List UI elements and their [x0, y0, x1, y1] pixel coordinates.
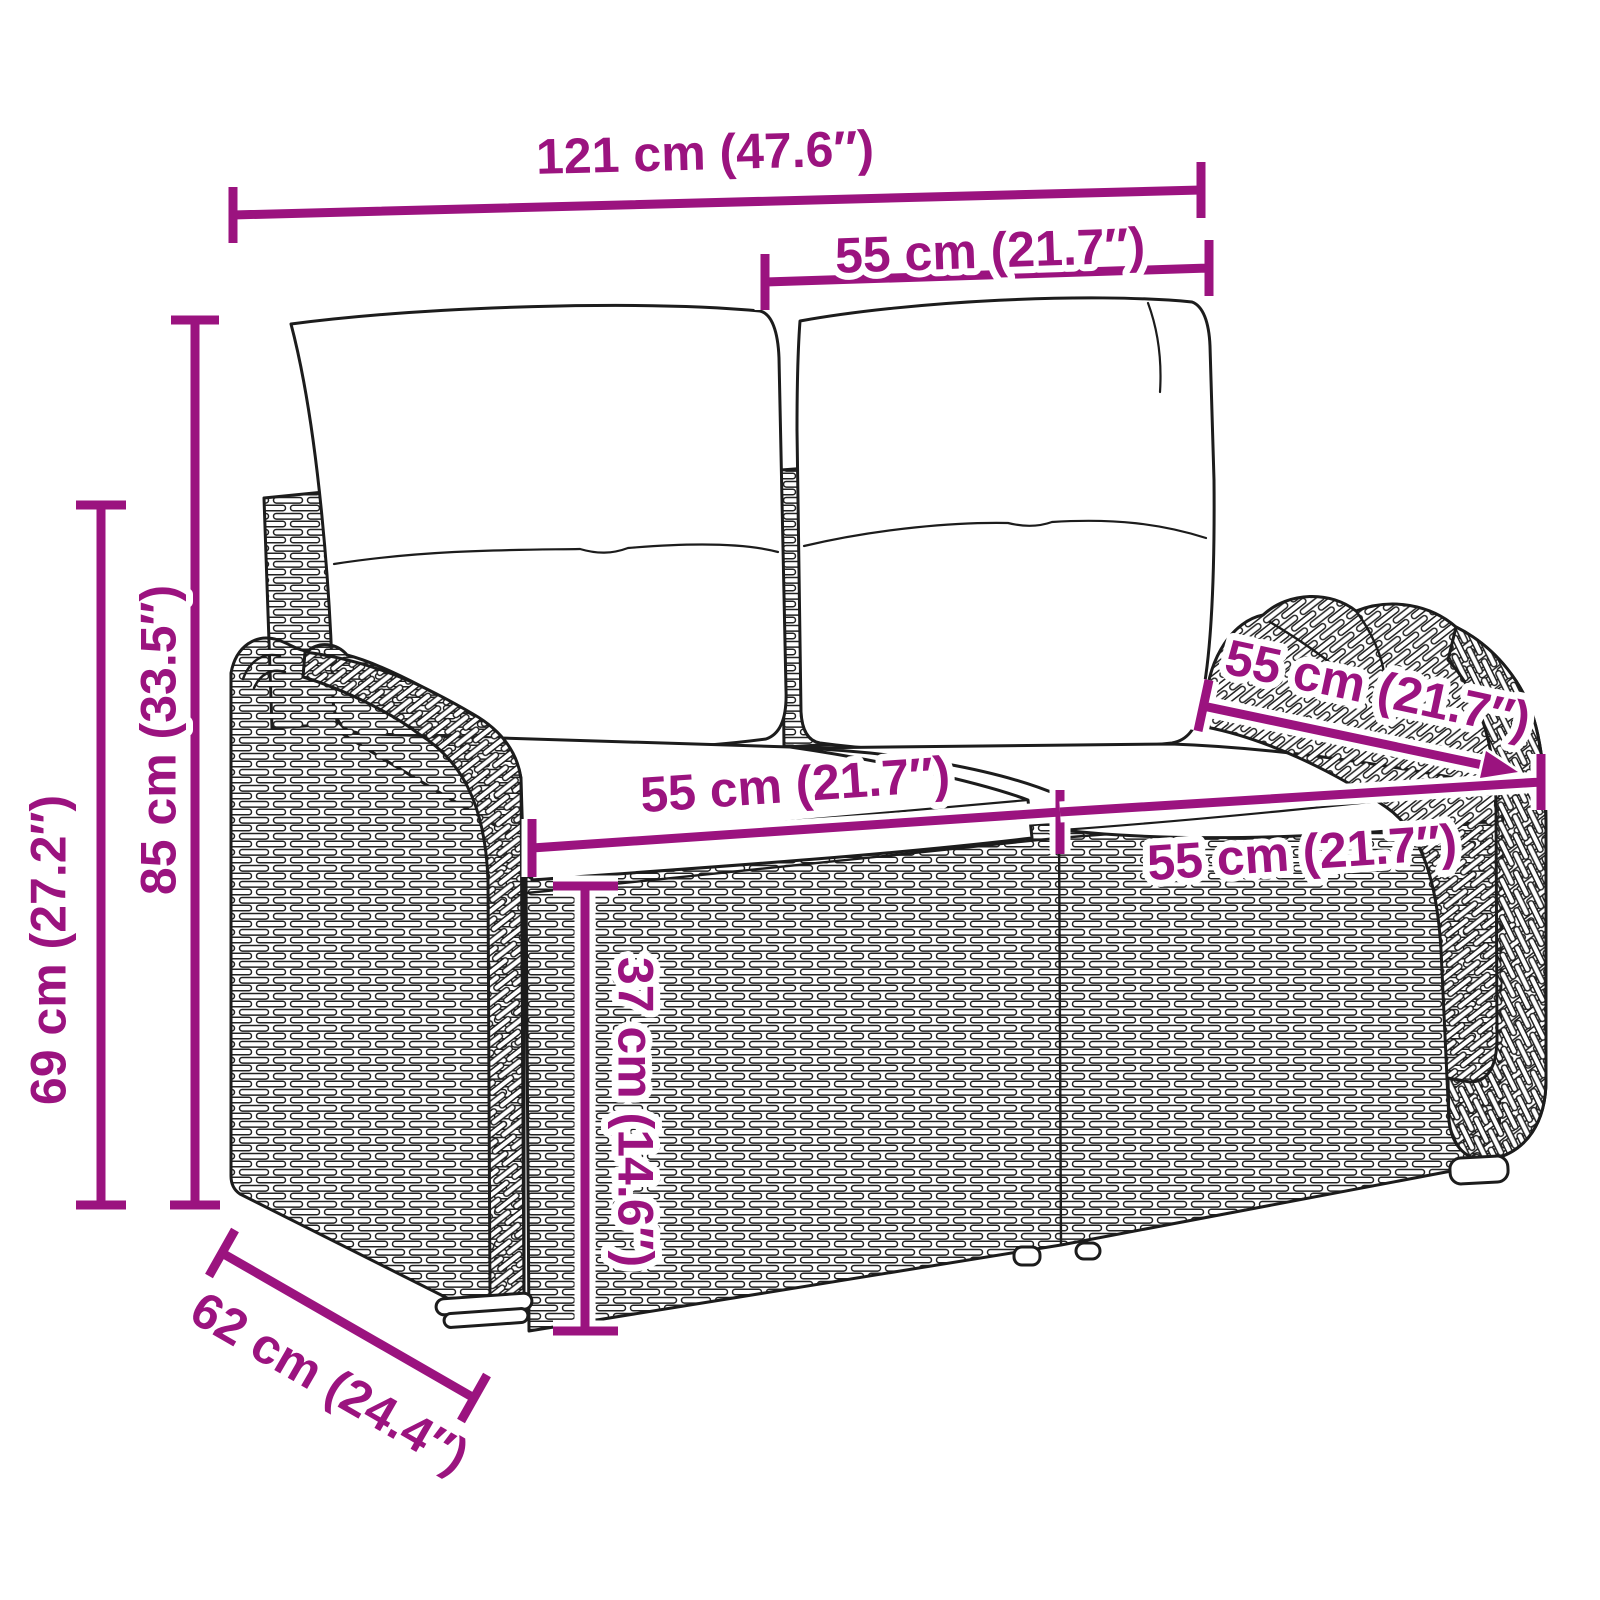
- middle-right-foot: [1076, 1243, 1100, 1259]
- left-armrest: [231, 638, 524, 1308]
- front-right-foot: [1449, 1156, 1508, 1185]
- dimension-back-cushion-width-label: 55 cm (21.7″): [834, 217, 1146, 284]
- dimension-overall-width-label: 121 cm (47.6″): [535, 120, 874, 185]
- dimension-back-cushion-width: 55 cm (21.7″): [765, 217, 1209, 310]
- middle-left-foot: [1014, 1247, 1040, 1265]
- dimension-total-height-label: 85 cm (33.5″): [131, 585, 187, 895]
- dimension-seat-height-label: 37 cm (14.6″): [608, 957, 664, 1267]
- product-dimension-diagram: 121 cm (47.6″) 55 cm (21.7″) 85 cm (33.5…: [0, 0, 1600, 1600]
- dimension-total-height: 85 cm (33.5″): [131, 320, 221, 1205]
- dimension-back-height-label: 69 cm (27.2″): [21, 795, 77, 1105]
- right-back-cushion: [797, 298, 1214, 753]
- diagram-canvas: 121 cm (47.6″) 55 cm (21.7″) 85 cm (33.5…: [0, 0, 1600, 1600]
- dimension-back-height: 69 cm (27.2″): [21, 505, 127, 1205]
